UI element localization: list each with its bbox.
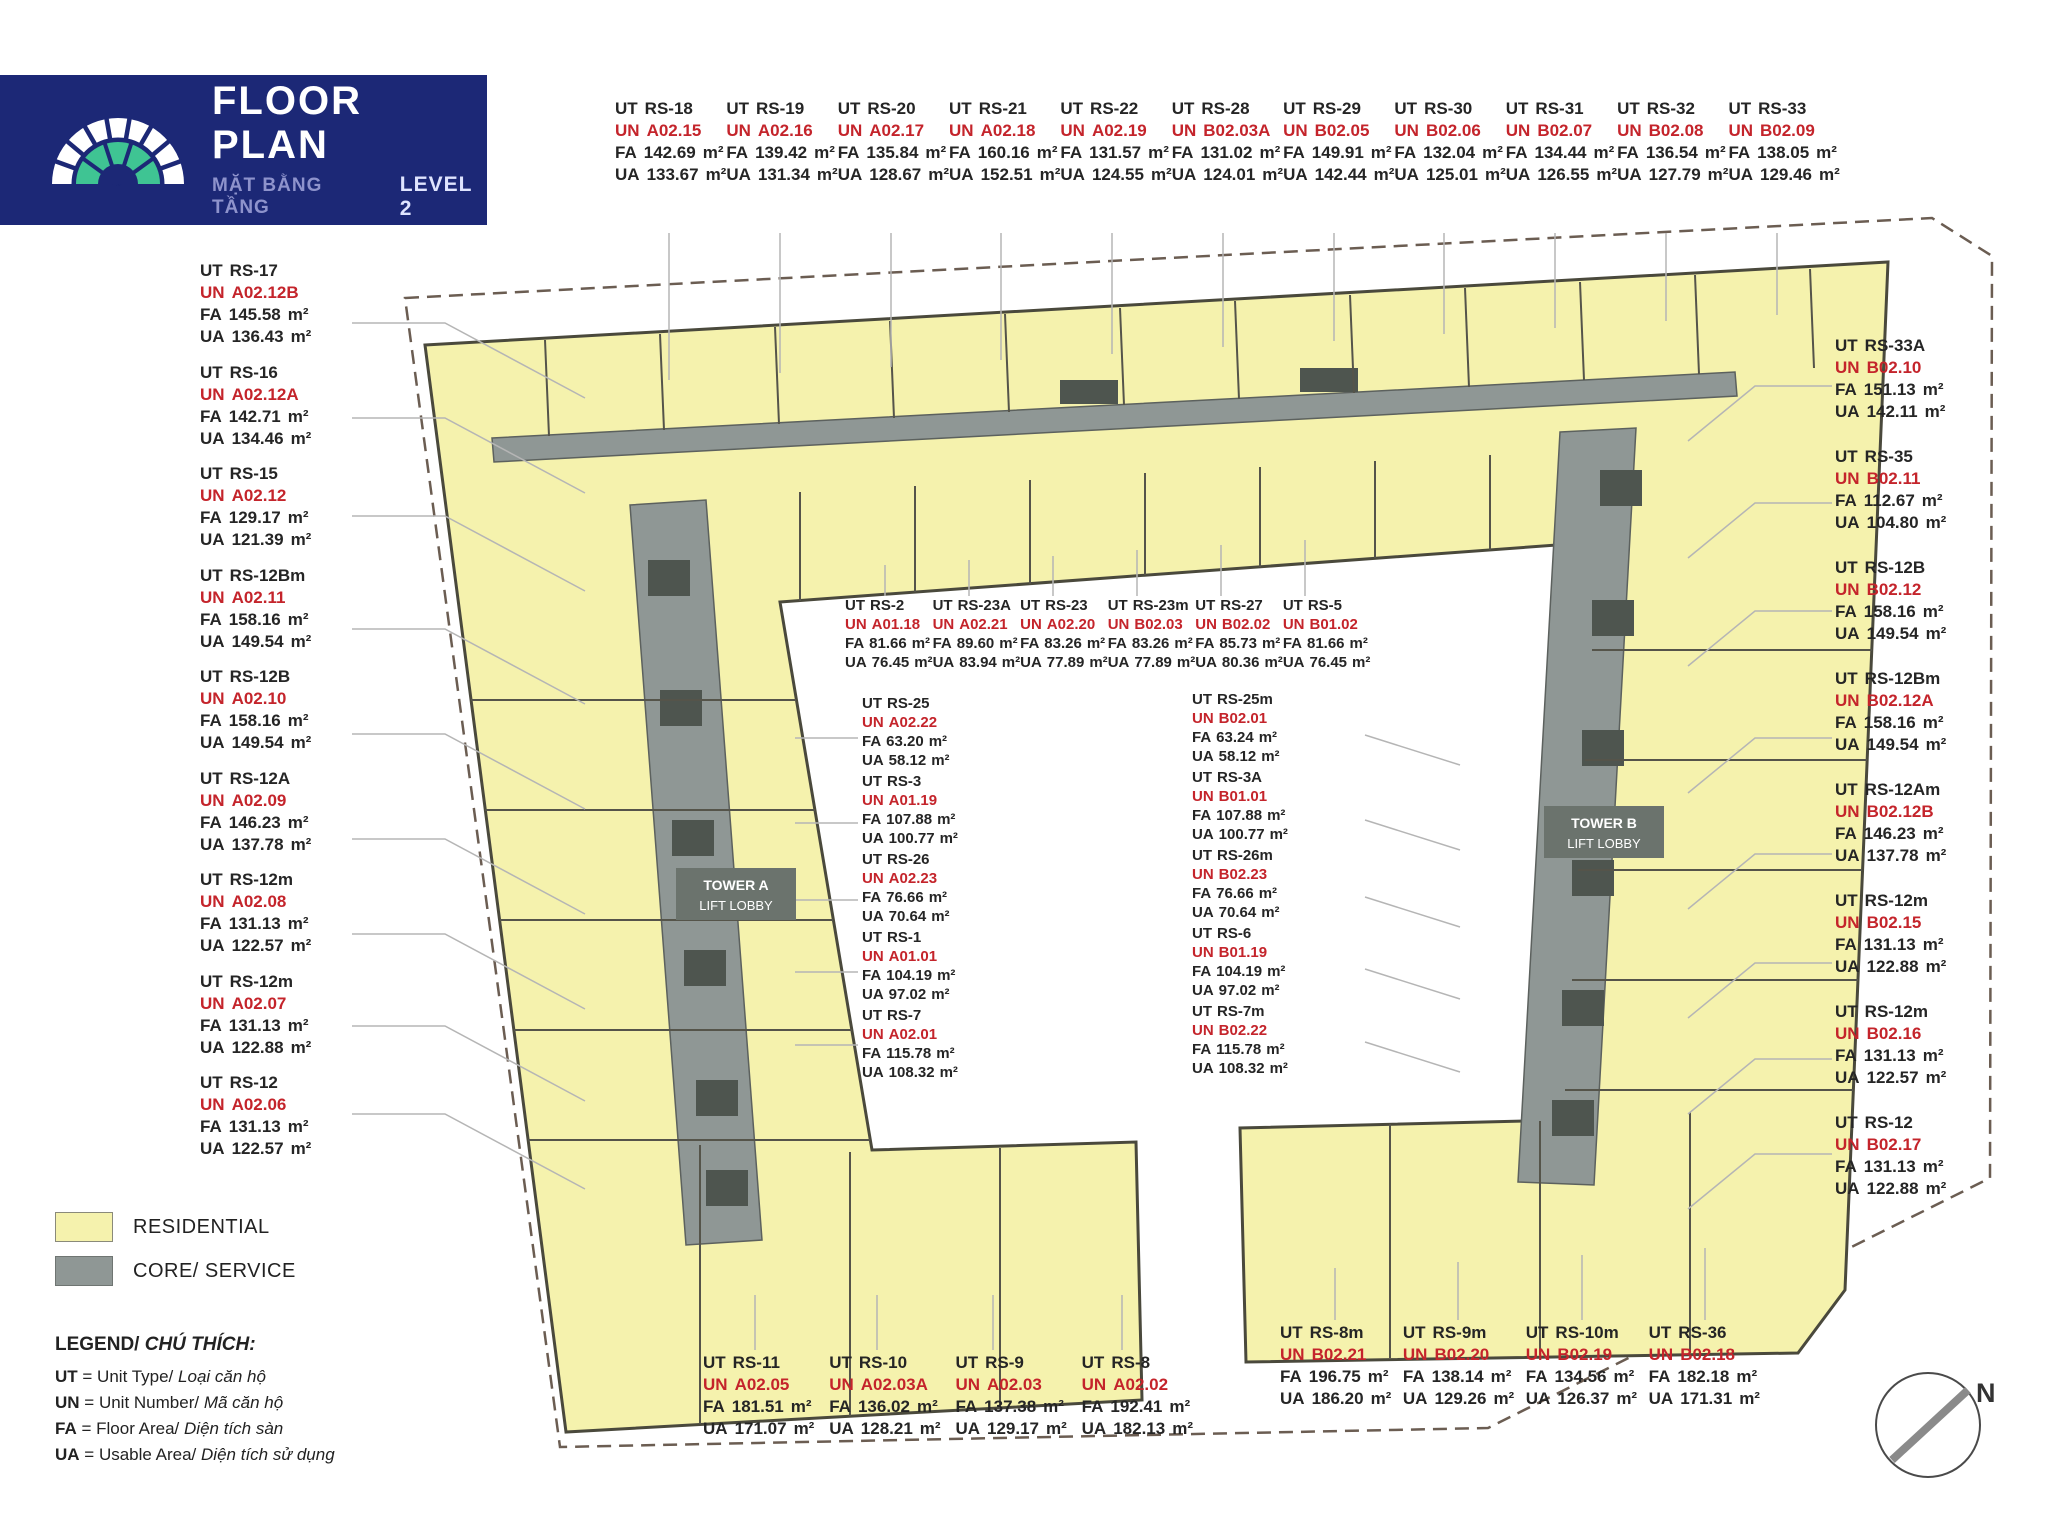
center-right-unit-column: UTRS-25m UNB02.01 FA63.24m² UA58.12m² UT… bbox=[1192, 690, 1288, 1080]
unit-label-group: UTRS-3A UNB01.01 FA107.88m² UA100.77m² bbox=[1192, 768, 1288, 844]
unit-type-row: UTRS-12Bm bbox=[200, 565, 311, 587]
unit-label-group: UTRS-15 UNA02.12 FA129.17m² UA121.39m² bbox=[200, 463, 311, 551]
unit-number-row: UNB02.16 bbox=[1835, 1023, 1946, 1045]
unit-type-row: UTRS-12Am bbox=[1835, 779, 1946, 801]
unit-number-row: UNA01.19 bbox=[862, 791, 958, 810]
usable-area-row: UA122.57m² bbox=[1835, 1067, 1946, 1089]
floor-area-row: FA76.66m² bbox=[1192, 884, 1288, 903]
unit-label-group: UTRS-7m UNB02.22 FA115.78m² UA108.32m² bbox=[1192, 1002, 1288, 1078]
unit-number-row: UNA02.02 bbox=[1082, 1374, 1193, 1396]
unit-label-group: UTRS-25 UNA02.22 FA63.20m² UA58.12m² bbox=[862, 694, 958, 770]
usable-area-row: UA133.67m² bbox=[615, 164, 726, 186]
svg-text:TOWER B: TOWER B bbox=[1571, 815, 1637, 831]
unit-type-row: UTRS-7m bbox=[1192, 1002, 1288, 1021]
unit-type-row: UTRS-22 bbox=[1060, 98, 1171, 120]
legend-definitions: UT = Unit Type/ Loại căn hộ UN = Unit Nu… bbox=[55, 1364, 335, 1468]
bottom-right-unit-row: UTRS-8m UNB02.21 FA196.75m² UA186.20m² U… bbox=[1280, 1322, 1760, 1410]
floor-area-row: FA131.13m² bbox=[200, 1116, 311, 1138]
unit-number-row: UNA02.05 bbox=[703, 1374, 814, 1396]
unit-number-row: UNA02.20 bbox=[1020, 615, 1108, 634]
usable-area-row: UA152.51m² bbox=[949, 164, 1060, 186]
floor-area-row: FA145.58m² bbox=[200, 304, 311, 326]
top-unit-row: UTRS-18 UNA02.15 FA142.69m² UA133.67m² U… bbox=[615, 98, 1830, 186]
unit-number-row: UNA02.12B bbox=[200, 282, 311, 304]
unit-number-row: UNB02.03 bbox=[1108, 615, 1196, 634]
legend-item: UN = Unit Number/ Mã căn hộ bbox=[55, 1390, 335, 1416]
usable-area-row: UA100.77m² bbox=[1192, 825, 1288, 844]
unit-number-row: UNB02.05 bbox=[1283, 120, 1394, 142]
floor-area-row: FA196.75m² bbox=[1280, 1366, 1391, 1388]
legend-item: UA = Usable Area/ Diện tích sử dụng bbox=[55, 1442, 335, 1468]
unit-label-group: UTRS-25m UNB02.01 FA63.24m² UA58.12m² bbox=[1192, 690, 1288, 766]
floor-area-row: FA131.57m² bbox=[1060, 142, 1171, 164]
unit-type-row: UTRS-19 bbox=[726, 98, 837, 120]
floor-area-row: FA158.16m² bbox=[200, 710, 311, 732]
floor-area-row: FA136.54m² bbox=[1617, 142, 1728, 164]
unit-label-group: UTRS-12Am UNB02.12B FA146.23m² UA137.78m… bbox=[1835, 779, 1946, 867]
floor-area-row: FA160.16m² bbox=[949, 142, 1060, 164]
usable-area-row: UA97.02m² bbox=[862, 985, 958, 1004]
unit-type-row: UTRS-20 bbox=[838, 98, 949, 120]
unit-type-row: UTRS-33A bbox=[1835, 335, 1946, 357]
unit-number-row: UNA02.08 bbox=[200, 891, 311, 913]
unit-type-row: UTRS-3 bbox=[862, 772, 958, 791]
floor-area-row: FA131.13m² bbox=[200, 1015, 311, 1037]
level-label: LEVEL 2 bbox=[400, 173, 487, 221]
floor-area-row: FA104.19m² bbox=[862, 966, 958, 985]
residential-swatch bbox=[55, 1212, 113, 1242]
unit-label-group: UTRS-26 UNA02.23 FA76.66m² UA70.64m² bbox=[862, 850, 958, 926]
unit-type-row: UTRS-31 bbox=[1506, 98, 1617, 120]
floor-area-row: FA131.13m² bbox=[1835, 1045, 1946, 1067]
floor-area-row: FA83.26m² bbox=[1020, 634, 1108, 653]
unit-label-group: UTRS-12m UNB02.16 FA131.13m² UA122.57m² bbox=[1835, 1001, 1946, 1089]
unit-type-row: UTRS-26 bbox=[862, 850, 958, 869]
floor-area-row: FA83.26m² bbox=[1108, 634, 1196, 653]
unit-number-row: UNB02.22 bbox=[1192, 1021, 1288, 1040]
unit-label-group: UTRS-10 UNA02.03A FA136.02m² UA128.21m² bbox=[829, 1352, 940, 1440]
unit-type-row: UTRS-17 bbox=[200, 260, 311, 282]
usable-area-row: UA149.54m² bbox=[200, 732, 311, 754]
unit-number-row: UNB02.21 bbox=[1280, 1344, 1391, 1366]
usable-area-row: UA122.88m² bbox=[1835, 956, 1946, 978]
unit-label-group: UTRS-16 UNA02.12A FA142.71m² UA134.46m² bbox=[200, 362, 311, 450]
unit-type-row: UTRS-12B bbox=[1835, 557, 1946, 579]
unit-type-row: UTRS-12m bbox=[200, 869, 311, 891]
unit-type-row: UTRS-36 bbox=[1649, 1322, 1760, 1344]
floor-area-row: FA146.23m² bbox=[1835, 823, 1946, 845]
floor-area-row: FA131.13m² bbox=[200, 913, 311, 935]
unit-type-row: UTRS-12m bbox=[1835, 890, 1946, 912]
unit-type-row: UTRS-12B bbox=[200, 666, 311, 688]
usable-area-row: UA125.01m² bbox=[1394, 164, 1505, 186]
usable-area-row: UA80.36m² bbox=[1195, 653, 1283, 672]
usable-area-row: UA104.80m² bbox=[1835, 512, 1946, 534]
unit-label-group: UTRS-27 UNB02.02 FA85.73m² UA80.36m² bbox=[1195, 596, 1283, 672]
usable-area-row: UA97.02m² bbox=[1192, 981, 1288, 1000]
floor-area-row: FA134.56m² bbox=[1526, 1366, 1637, 1388]
unit-number-row: UNB02.19 bbox=[1526, 1344, 1637, 1366]
floor-area-row: FA134.44m² bbox=[1506, 142, 1617, 164]
unit-label-group: UTRS-32 UNB02.08 FA136.54m² UA127.79m² bbox=[1617, 98, 1728, 186]
svg-text:LIFT LOBBY: LIFT LOBBY bbox=[1567, 836, 1641, 851]
center-left-unit-column: UTRS-25 UNA02.22 FA63.20m² UA58.12m² UTR… bbox=[862, 694, 958, 1084]
legend-title: LEGEND/ CHÚ THÍCH: bbox=[55, 1334, 335, 1356]
floor-area-row: FA89.60m² bbox=[933, 634, 1021, 653]
page-title: FLOOR PLAN bbox=[212, 79, 487, 167]
right-unit-column: UTRS-33A UNB02.10 FA151.13m² UA142.11m² … bbox=[1835, 335, 1946, 1200]
unit-type-row: UTRS-12 bbox=[200, 1072, 311, 1094]
north-label: N bbox=[1976, 1378, 1996, 1408]
unit-type-row: UTRS-29 bbox=[1283, 98, 1394, 120]
unit-number-row: UNA02.22 bbox=[862, 713, 958, 732]
floor-area-row: FA142.69m² bbox=[615, 142, 726, 164]
usable-area-row: UA186.20m² bbox=[1280, 1388, 1391, 1410]
unit-label-group: UTRS-12m UNA02.08 FA131.13m² UA122.57m² bbox=[200, 869, 311, 957]
unit-number-row: UNB02.18 bbox=[1649, 1344, 1760, 1366]
unit-label-group: UTRS-7 UNA02.01 FA115.78m² UA108.32m² bbox=[862, 1006, 958, 1082]
floor-area-row: FA131.13m² bbox=[1835, 934, 1946, 956]
unit-number-row: UNB02.17 bbox=[1835, 1134, 1946, 1156]
floor-area-row: FA112.67m² bbox=[1835, 490, 1946, 512]
logo: FLOOR PLAN MẶT BẰNG TẦNG LEVEL 2 bbox=[0, 75, 487, 225]
unit-type-row: UTRS-27 bbox=[1195, 596, 1283, 615]
arch-logo-icon bbox=[48, 114, 188, 186]
unit-number-row: UNB01.19 bbox=[1192, 943, 1288, 962]
unit-number-row: UNA02.16 bbox=[726, 120, 837, 142]
unit-type-row: UTRS-26m bbox=[1192, 846, 1288, 865]
usable-area-row: UA76.45m² bbox=[1283, 653, 1371, 672]
usable-area-row: UA129.26m² bbox=[1403, 1388, 1514, 1410]
unit-type-row: UTRS-9 bbox=[955, 1352, 1066, 1374]
unit-label-group: UTRS-17 UNA02.12B FA145.58m² UA136.43m² bbox=[200, 260, 311, 348]
unit-number-row: UNA02.12A bbox=[200, 384, 311, 406]
usable-area-row: UA137.78m² bbox=[200, 834, 311, 856]
unit-label-group: UTRS-3 UNA01.19 FA107.88m² UA100.77m² bbox=[862, 772, 958, 848]
unit-label-group: UTRS-20 UNA02.17 FA135.84m² UA128.67m² bbox=[838, 98, 949, 186]
usable-area-row: UA136.43m² bbox=[200, 326, 311, 348]
unit-number-row: UNA02.01 bbox=[862, 1025, 958, 1044]
unit-number-row: UNB02.20 bbox=[1403, 1344, 1514, 1366]
unit-number-row: UNB02.10 bbox=[1835, 357, 1946, 379]
floor-area-row: FA115.78m² bbox=[862, 1044, 958, 1063]
unit-type-row: UTRS-33 bbox=[1728, 98, 1839, 120]
usable-area-row: UA83.94m² bbox=[933, 653, 1021, 672]
floor-area-row: FA131.02m² bbox=[1172, 142, 1283, 164]
unit-type-row: UTRS-12 bbox=[1835, 1112, 1946, 1134]
tower-a-lobby: TOWER A LIFT LOBBY bbox=[676, 868, 796, 920]
unit-type-row: UTRS-30 bbox=[1394, 98, 1505, 120]
unit-label-group: UTRS-21 UNA02.18 FA160.16m² UA152.51m² bbox=[949, 98, 1060, 186]
floor-area-row: FA158.16m² bbox=[200, 609, 311, 631]
floor-area-row: FA136.02m² bbox=[829, 1396, 940, 1418]
floor-area-row: FA181.51m² bbox=[703, 1396, 814, 1418]
unit-number-row: UNB02.12A bbox=[1835, 690, 1946, 712]
usable-area-row: UA100.77m² bbox=[862, 829, 958, 848]
unit-number-row: UNA02.19 bbox=[1060, 120, 1171, 142]
usable-area-row: UA131.34m² bbox=[726, 164, 837, 186]
unit-number-row: UNA02.03A bbox=[829, 1374, 940, 1396]
unit-label-group: UTRS-23m UNB02.03 FA83.26m² UA77.89m² bbox=[1108, 596, 1196, 672]
usable-area-row: UA70.64m² bbox=[1192, 903, 1288, 922]
unit-label-group: UTRS-12A UNA02.09 FA146.23m² UA137.78m² bbox=[200, 768, 311, 856]
unit-label-group: UTRS-5 UNB01.02 FA81.66m² UA76.45m² bbox=[1283, 596, 1371, 672]
unit-type-row: UTRS-25 bbox=[862, 694, 958, 713]
usable-area-row: UA70.64m² bbox=[862, 907, 958, 926]
unit-label-group: UTRS-31 UNB02.07 FA134.44m² UA126.55m² bbox=[1506, 98, 1617, 186]
usable-area-row: UA77.89m² bbox=[1108, 653, 1196, 672]
svg-text:TOWER A: TOWER A bbox=[703, 877, 768, 893]
legend: RESIDENTIAL CORE/ SERVICE LEGEND/ CHÚ TH… bbox=[55, 1212, 335, 1468]
floor-area-row: FA158.16m² bbox=[1835, 712, 1946, 734]
floor-area-row: FA139.42m² bbox=[726, 142, 837, 164]
unit-type-row: UTRS-2 bbox=[845, 596, 933, 615]
floor-area-row: FA81.66m² bbox=[1283, 634, 1371, 653]
legend-item: FA = Floor Area/ Diện tích sàn bbox=[55, 1416, 335, 1442]
unit-type-row: UTRS-23m bbox=[1108, 596, 1196, 615]
floor-area-row: FA129.17m² bbox=[200, 507, 311, 529]
unit-label-group: UTRS-36 UNB02.18 FA182.18m² UA171.31m² bbox=[1649, 1322, 1760, 1410]
floor-area-row: FA76.66m² bbox=[862, 888, 958, 907]
unit-type-row: UTRS-1 bbox=[862, 928, 958, 947]
floor-plan-page: TOWER A LIFT LOBBY TOWER B LIFT LOBBY N bbox=[0, 0, 2048, 1515]
unit-label-group: UTRS-33 UNB02.09 FA138.05m² UA129.46m² bbox=[1728, 98, 1839, 186]
unit-label-group: UTRS-9 UNA02.03 FA137.38m² UA129.17m² bbox=[955, 1352, 1066, 1440]
unit-type-row: UTRS-35 bbox=[1835, 446, 1946, 468]
floor-area-row: FA138.05m² bbox=[1728, 142, 1839, 164]
floor-area-row: FA192.41m² bbox=[1082, 1396, 1193, 1418]
usable-area-row: UA108.32m² bbox=[862, 1063, 958, 1082]
floor-area-row: FA135.84m² bbox=[838, 142, 949, 164]
unit-number-row: UNA02.10 bbox=[200, 688, 311, 710]
compass: N bbox=[1876, 1373, 1996, 1477]
floor-area-row: FA182.18m² bbox=[1649, 1366, 1760, 1388]
unit-number-row: UNB01.01 bbox=[1192, 787, 1288, 806]
usable-area-row: UA77.89m² bbox=[1020, 653, 1108, 672]
floor-area-row: FA138.14m² bbox=[1403, 1366, 1514, 1388]
floor-area-row: FA107.88m² bbox=[862, 810, 958, 829]
legend-item: UT = Unit Type/ Loại căn hộ bbox=[55, 1364, 335, 1390]
usable-area-row: UA129.46m² bbox=[1728, 164, 1839, 186]
unit-number-row: UNB02.23 bbox=[1192, 865, 1288, 884]
core-swatch bbox=[55, 1256, 113, 1286]
unit-number-row: UNA02.23 bbox=[862, 869, 958, 888]
unit-type-row: UTRS-11 bbox=[703, 1352, 814, 1374]
left-unit-column: UTRS-17 UNA02.12B FA145.58m² UA136.43m² … bbox=[200, 260, 311, 1160]
unit-type-row: UTRS-9m bbox=[1403, 1322, 1514, 1344]
unit-type-row: UTRS-16 bbox=[200, 362, 311, 384]
usable-area-row: UA124.01m² bbox=[1172, 164, 1283, 186]
unit-number-row: UNB02.12 bbox=[1835, 579, 1946, 601]
unit-type-row: UTRS-32 bbox=[1617, 98, 1728, 120]
usable-area-row: UA182.13m² bbox=[1082, 1418, 1193, 1440]
unit-number-row: UNA02.06 bbox=[200, 1094, 311, 1116]
unit-type-row: UTRS-12m bbox=[1835, 1001, 1946, 1023]
unit-number-row: UNA02.17 bbox=[838, 120, 949, 142]
unit-number-row: UNA01.18 bbox=[845, 615, 933, 634]
floor-area-row: FA63.20m² bbox=[862, 732, 958, 751]
tower-b-lobby: TOWER B LIFT LOBBY bbox=[1544, 806, 1664, 858]
unit-number-row: UNB02.03A bbox=[1172, 120, 1283, 142]
usable-area-row: UA122.88m² bbox=[200, 1037, 311, 1059]
unit-number-row: UNB02.07 bbox=[1506, 120, 1617, 142]
floor-area-row: FA151.13m² bbox=[1835, 379, 1946, 401]
unit-label-group: UTRS-29 UNB02.05 FA149.91m² UA142.44m² bbox=[1283, 98, 1394, 186]
usable-area-row: UA128.67m² bbox=[838, 164, 949, 186]
usable-area-row: UA149.54m² bbox=[200, 631, 311, 653]
unit-number-row: UNA02.12 bbox=[200, 485, 311, 507]
unit-type-row: UTRS-10 bbox=[829, 1352, 940, 1374]
unit-type-row: UTRS-8m bbox=[1280, 1322, 1391, 1344]
unit-type-row: UTRS-6 bbox=[1192, 924, 1288, 943]
page-subtitle-vi: MẶT BẰNG TẦNG bbox=[212, 175, 378, 219]
usable-area-row: UA129.17m² bbox=[955, 1418, 1066, 1440]
usable-area-row: UA142.11m² bbox=[1835, 401, 1946, 423]
svg-text:LIFT LOBBY: LIFT LOBBY bbox=[699, 898, 773, 913]
usable-area-row: UA128.21m² bbox=[829, 1418, 940, 1440]
floor-area-row: FA137.38m² bbox=[955, 1396, 1066, 1418]
unit-label-group: UTRS-26m UNB02.23 FA76.66m² UA70.64m² bbox=[1192, 846, 1288, 922]
usable-area-row: UA126.37m² bbox=[1526, 1388, 1637, 1410]
unit-label-group: UTRS-23 UNA02.20 FA83.26m² UA77.89m² bbox=[1020, 596, 1108, 672]
unit-number-row: UNB02.08 bbox=[1617, 120, 1728, 142]
usable-area-row: UA127.79m² bbox=[1617, 164, 1728, 186]
unit-label-group: UTRS-12B UNB02.12 FA158.16m² UA149.54m² bbox=[1835, 557, 1946, 645]
usable-area-row: UA134.46m² bbox=[200, 428, 311, 450]
usable-area-row: UA124.55m² bbox=[1060, 164, 1171, 186]
unit-type-row: UTRS-12Bm bbox=[1835, 668, 1946, 690]
floor-area-row: FA158.16m² bbox=[1835, 601, 1946, 623]
unit-label-group: UTRS-8 UNA02.02 FA192.41m² UA182.13m² bbox=[1082, 1352, 1193, 1440]
unit-label-group: UTRS-22 UNA02.19 FA131.57m² UA124.55m² bbox=[1060, 98, 1171, 186]
unit-label-group: UTRS-30 UNB02.06 FA132.04m² UA125.01m² bbox=[1394, 98, 1505, 186]
unit-label-group: UTRS-6 UNB01.19 FA104.19m² UA97.02m² bbox=[1192, 924, 1288, 1000]
usable-area-row: UA108.32m² bbox=[1192, 1059, 1288, 1078]
usable-area-row: UA149.54m² bbox=[1835, 623, 1946, 645]
floor-area-row: FA146.23m² bbox=[200, 812, 311, 834]
unit-label-group: UTRS-10m UNB02.19 FA134.56m² UA126.37m² bbox=[1526, 1322, 1637, 1410]
legend-core: CORE/ SERVICE bbox=[55, 1256, 335, 1286]
unit-label-group: UTRS-23A UNA02.21 FA89.60m² UA83.94m² bbox=[933, 596, 1021, 672]
floor-area-row: FA149.91m² bbox=[1283, 142, 1394, 164]
unit-type-row: UTRS-25m bbox=[1192, 690, 1288, 709]
unit-type-row: UTRS-23 bbox=[1020, 596, 1108, 615]
floor-area-row: FA81.66m² bbox=[845, 634, 933, 653]
unit-label-group: UTRS-12 UNA02.06 FA131.13m² UA122.57m² bbox=[200, 1072, 311, 1160]
unit-label-group: UTRS-9m UNB02.20 FA138.14m² UA129.26m² bbox=[1403, 1322, 1514, 1410]
floor-area-row: FA104.19m² bbox=[1192, 962, 1288, 981]
floor-area-row: FA131.13m² bbox=[1835, 1156, 1946, 1178]
usable-area-row: UA58.12m² bbox=[862, 751, 958, 770]
unit-number-row: UNB02.06 bbox=[1394, 120, 1505, 142]
usable-area-row: UA122.57m² bbox=[200, 1138, 311, 1160]
center-top-unit-row: UTRS-2 UNA01.18 FA81.66m² UA76.45m² UTRS… bbox=[845, 596, 1345, 672]
unit-label-group: UTRS-12Bm UNA02.11 FA158.16m² UA149.54m² bbox=[200, 565, 311, 653]
usable-area-row: UA58.12m² bbox=[1192, 747, 1288, 766]
unit-number-row: UNB01.02 bbox=[1283, 615, 1371, 634]
usable-area-row: UA126.55m² bbox=[1506, 164, 1617, 186]
unit-label-group: UTRS-35 UNB02.11 FA112.67m² UA104.80m² bbox=[1835, 446, 1946, 534]
unit-number-row: UNB02.12B bbox=[1835, 801, 1946, 823]
unit-type-row: UTRS-12m bbox=[200, 971, 311, 993]
unit-number-row: UNB02.02 bbox=[1195, 615, 1283, 634]
unit-number-row: UNA02.15 bbox=[615, 120, 726, 142]
usable-area-row: UA137.78m² bbox=[1835, 845, 1946, 867]
unit-label-group: UTRS-12Bm UNB02.12A FA158.16m² UA149.54m… bbox=[1835, 668, 1946, 756]
unit-label-group: UTRS-28 UNB02.03A FA131.02m² UA124.01m² bbox=[1172, 98, 1283, 186]
unit-label-group: UTRS-12 UNB02.17 FA131.13m² UA122.88m² bbox=[1835, 1112, 1946, 1200]
unit-type-row: UTRS-28 bbox=[1172, 98, 1283, 120]
unit-number-row: UNA02.18 bbox=[949, 120, 1060, 142]
floor-area-row: FA142.71m² bbox=[200, 406, 311, 428]
usable-area-row: UA122.57m² bbox=[200, 935, 311, 957]
floor-area-row: FA107.88m² bbox=[1192, 806, 1288, 825]
usable-area-row: UA76.45m² bbox=[845, 653, 933, 672]
unit-label-group: UTRS-18 UNA02.15 FA142.69m² UA133.67m² bbox=[615, 98, 726, 186]
usable-area-row: UA171.31m² bbox=[1649, 1388, 1760, 1410]
floor-area-row: FA132.04m² bbox=[1394, 142, 1505, 164]
unit-type-row: UTRS-12A bbox=[200, 768, 311, 790]
unit-type-row: UTRS-15 bbox=[200, 463, 311, 485]
unit-label-group: UTRS-12m UNA02.07 FA131.13m² UA122.88m² bbox=[200, 971, 311, 1059]
unit-number-row: UNB02.09 bbox=[1728, 120, 1839, 142]
usable-area-row: UA149.54m² bbox=[1835, 734, 1946, 756]
usable-area-row: UA122.88m² bbox=[1835, 1178, 1946, 1200]
unit-label-group: UTRS-2 UNA01.18 FA81.66m² UA76.45m² bbox=[845, 596, 933, 672]
bottom-left-unit-row: UTRS-11 UNA02.05 FA181.51m² UA171.07m² U… bbox=[703, 1352, 1193, 1440]
unit-type-row: UTRS-23A bbox=[933, 596, 1021, 615]
usable-area-row: UA171.07m² bbox=[703, 1418, 814, 1440]
unit-number-row: UNA02.09 bbox=[200, 790, 311, 812]
unit-label-group: UTRS-12m UNB02.15 FA131.13m² UA122.88m² bbox=[1835, 890, 1946, 978]
legend-residential: RESIDENTIAL bbox=[55, 1212, 335, 1242]
floor-area-row: FA63.24m² bbox=[1192, 728, 1288, 747]
unit-number-row: UNA02.11 bbox=[200, 587, 311, 609]
floor-area-row: FA85.73m² bbox=[1195, 634, 1283, 653]
unit-type-row: UTRS-8 bbox=[1082, 1352, 1193, 1374]
unit-label-group: UTRS-19 UNA02.16 FA139.42m² UA131.34m² bbox=[726, 98, 837, 186]
unit-label-group: UTRS-12B UNA02.10 FA158.16m² UA149.54m² bbox=[200, 666, 311, 754]
usable-area-row: UA142.44m² bbox=[1283, 164, 1394, 186]
unit-type-row: UTRS-5 bbox=[1283, 596, 1371, 615]
unit-number-row: UNA01.01 bbox=[862, 947, 958, 966]
usable-area-row: UA121.39m² bbox=[200, 529, 311, 551]
unit-number-row: UNA02.03 bbox=[955, 1374, 1066, 1396]
unit-type-row: UTRS-10m bbox=[1526, 1322, 1637, 1344]
unit-type-row: UTRS-7 bbox=[862, 1006, 958, 1025]
unit-type-row: UTRS-18 bbox=[615, 98, 726, 120]
unit-label-group: UTRS-33A UNB02.10 FA151.13m² UA142.11m² bbox=[1835, 335, 1946, 423]
unit-number-row: UNA02.07 bbox=[200, 993, 311, 1015]
unit-label-group: UTRS-11 UNA02.05 FA181.51m² UA171.07m² bbox=[703, 1352, 814, 1440]
unit-label-group: UTRS-8m UNB02.21 FA196.75m² UA186.20m² bbox=[1280, 1322, 1391, 1410]
unit-number-row: UNB02.01 bbox=[1192, 709, 1288, 728]
unit-number-row: UNB02.15 bbox=[1835, 912, 1946, 934]
floor-area-row: FA115.78m² bbox=[1192, 1040, 1288, 1059]
unit-type-row: UTRS-21 bbox=[949, 98, 1060, 120]
unit-number-row: UNB02.11 bbox=[1835, 468, 1946, 490]
unit-label-group: UTRS-1 UNA01.01 FA104.19m² UA97.02m² bbox=[862, 928, 958, 1004]
unit-number-row: UNA02.21 bbox=[933, 615, 1021, 634]
unit-type-row: UTRS-3A bbox=[1192, 768, 1288, 787]
